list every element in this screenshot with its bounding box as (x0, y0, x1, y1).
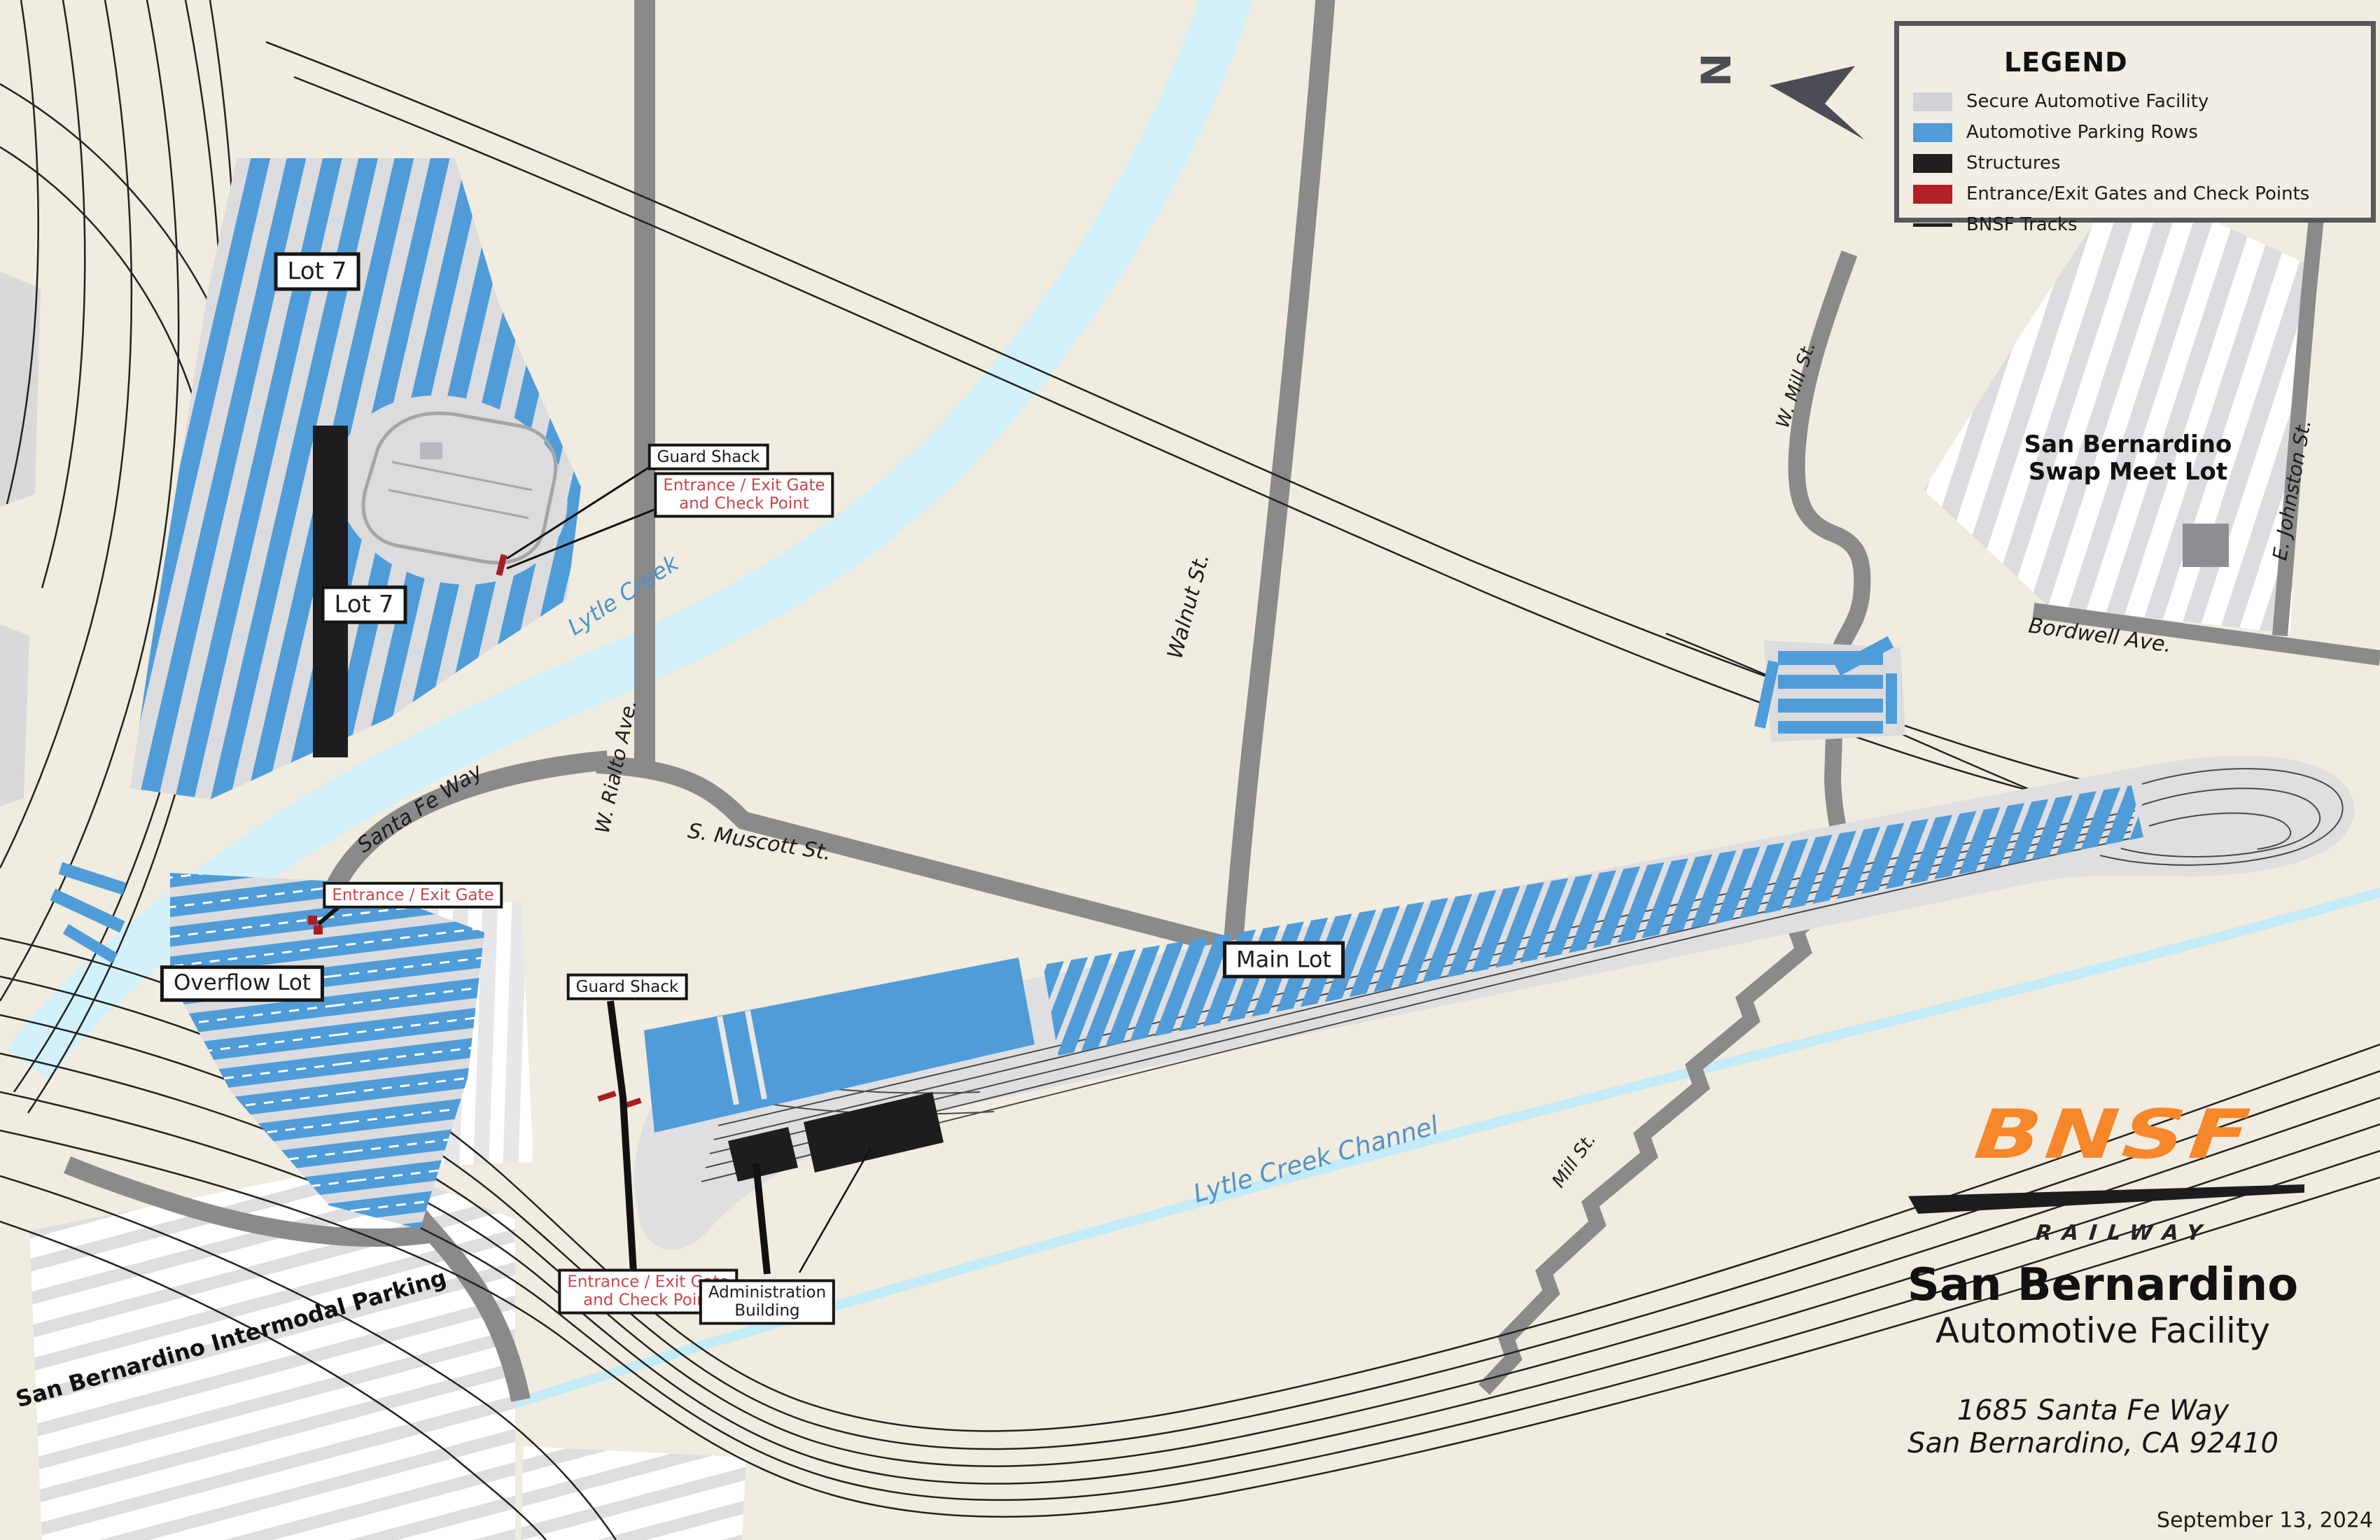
lot7-upper-label: Lot 7 (274, 252, 360, 290)
facility-type-title: Automotive Facility (1935, 1310, 2270, 1351)
swap-meet-lot (1924, 179, 2309, 633)
gate-checkpoint-north-label: Entrance / Exit Gate and Check Point (654, 472, 834, 518)
address-line1: 1685 Santa Fe Way (1957, 1394, 2229, 1427)
main-facility (633, 755, 2354, 1249)
overflow-lot-label: Overflow Lot (160, 965, 324, 1002)
bnsf-logo: BNSF (1912, 1100, 2316, 1168)
legend: LEGEND Secure Automotive Facility Automo… (1894, 21, 2376, 223)
structures-swatch (1913, 154, 1952, 173)
secure-facility-swatch (1913, 92, 1952, 111)
address-line2: San Bernardino, CA 92410 (1907, 1427, 2278, 1459)
lot7-lower-label: Lot 7 (321, 585, 407, 624)
gates-swatch (1913, 185, 1952, 204)
legend-item-label: Entrance/Exit Gates and Check Points (1966, 183, 2309, 204)
legend-item-label: BNSF Tracks (1966, 214, 2078, 235)
north-label: N (1693, 53, 1740, 87)
main-lot-label: Main Lot (1223, 941, 1345, 979)
bnsf-railway-label: RAILWAY (2034, 1221, 2213, 1245)
legend-title: LEGEND (2004, 47, 2371, 78)
legend-item-secure-facility: Secure Automotive Facility (1899, 86, 2371, 117)
parking-rows-swatch (1913, 123, 1952, 142)
map-date: September 13, 2024 (2157, 1508, 2373, 1533)
mill-street-lot (1754, 636, 1905, 742)
guard-shack-north-label: Guard Shack (648, 444, 769, 470)
swap-meet-line2: Swap Meet Lot (2029, 458, 2227, 486)
left-edge-areas (0, 272, 41, 806)
legend-item-gates: Entrance/Exit Gates and Check Points (1899, 178, 2371, 209)
facility-map: Lot 7 Lot 7 Guard Shack Entrance / Exit … (0, 0, 2380, 1540)
legend-item-label: Secure Automotive Facility (1966, 91, 2208, 112)
administration-line1: Administration (708, 1284, 826, 1302)
swap-meet-line1: San Bernardino (2024, 430, 2232, 458)
legend-item-label: Structures (1966, 153, 2061, 174)
legend-item-tracks: BNSF Tracks (1899, 209, 2371, 240)
gate-checkpoint-main-line2: and Check Point (583, 1291, 713, 1310)
north-arrow-icon (1770, 66, 1865, 140)
administration-building-label: Administration Building (699, 1280, 835, 1325)
gate-checkpoint-north-line2: and Check Point (679, 495, 809, 513)
legend-item-label: Automotive Parking Rows (1966, 122, 2198, 143)
entrance-exit-gate-label: Entrance / Exit Gate (323, 882, 503, 909)
guard-shack-main-label: Guard Shack (567, 974, 688, 1000)
administration-line2: Building (734, 1302, 799, 1320)
gate-checkpoint-north-line1: Entrance / Exit Gate (663, 477, 825, 495)
swap-meet-lot-label: San Bernardino Swap Meet Lot (2024, 431, 2232, 486)
legend-item-structures: Structures (1899, 148, 2371, 178)
legend-item-parking-rows: Automotive Parking Rows (1899, 117, 2371, 148)
tracks-swatch (1913, 223, 1952, 227)
facility-city-title: San Bernardino (1907, 1259, 2298, 1311)
